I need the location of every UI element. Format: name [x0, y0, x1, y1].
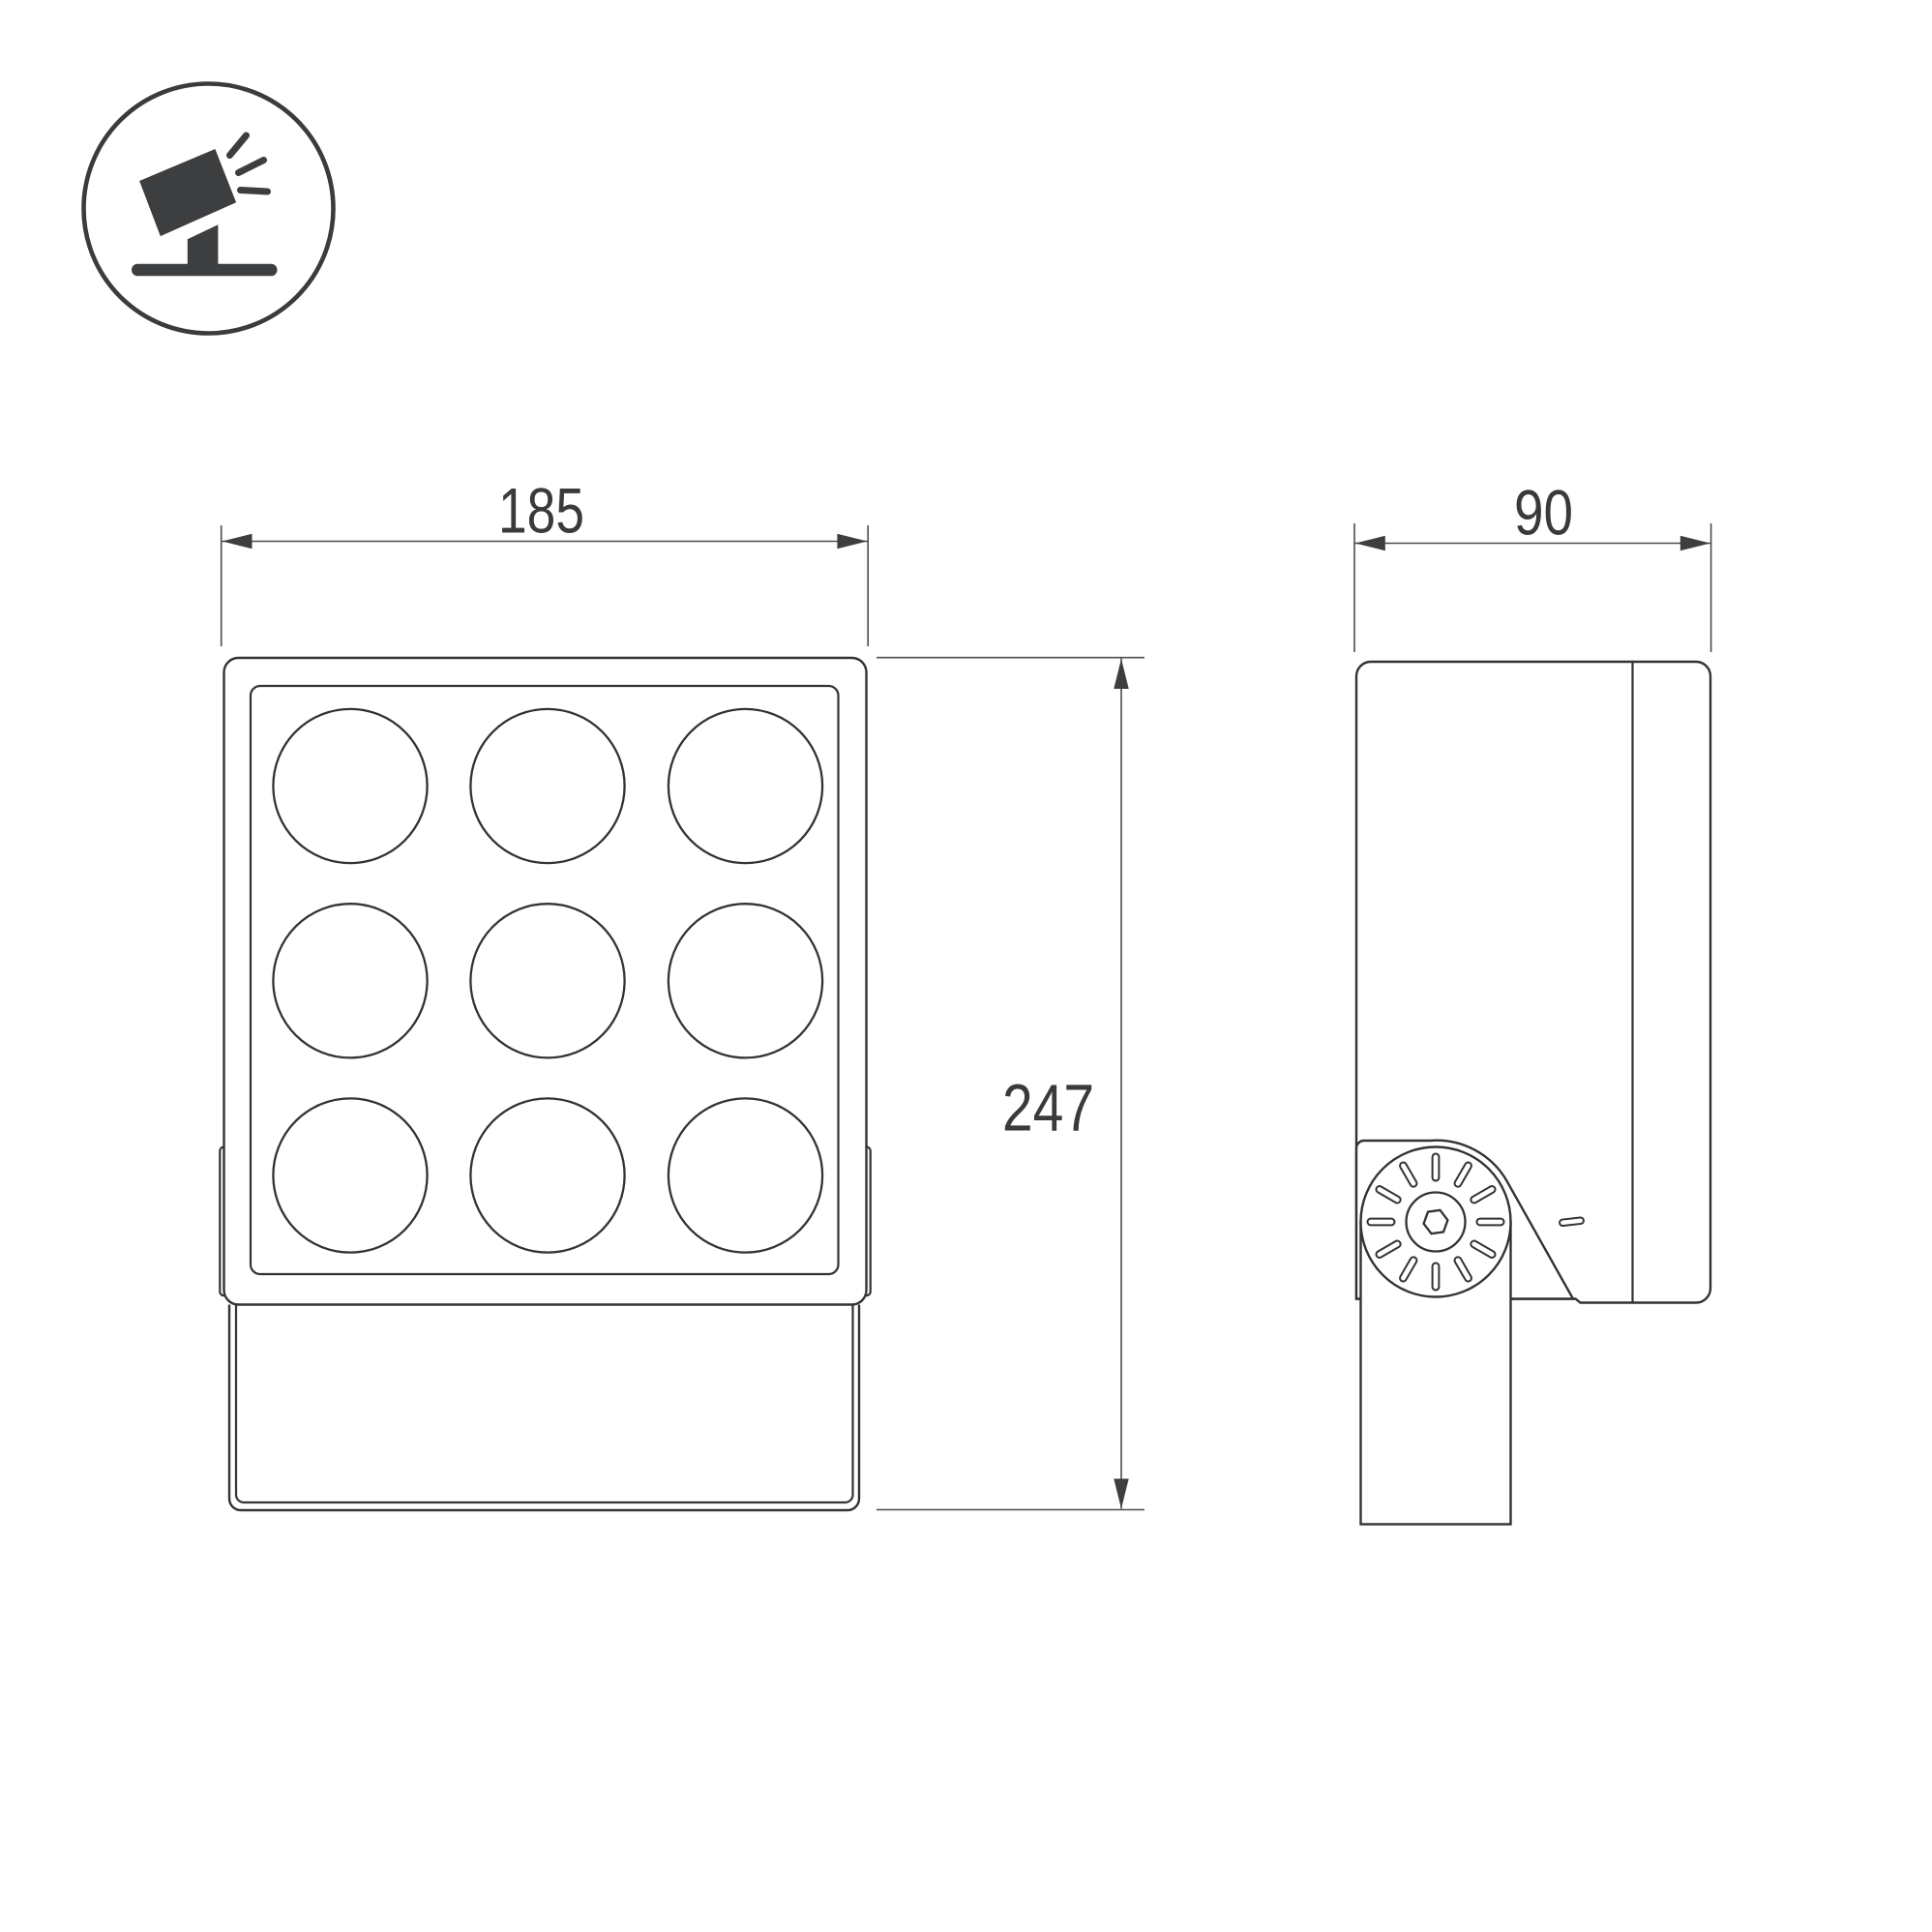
svg-text:185: 185 — [498, 475, 584, 547]
svg-text:247: 247 — [1002, 1070, 1094, 1144]
svg-text:90: 90 — [1514, 476, 1573, 548]
